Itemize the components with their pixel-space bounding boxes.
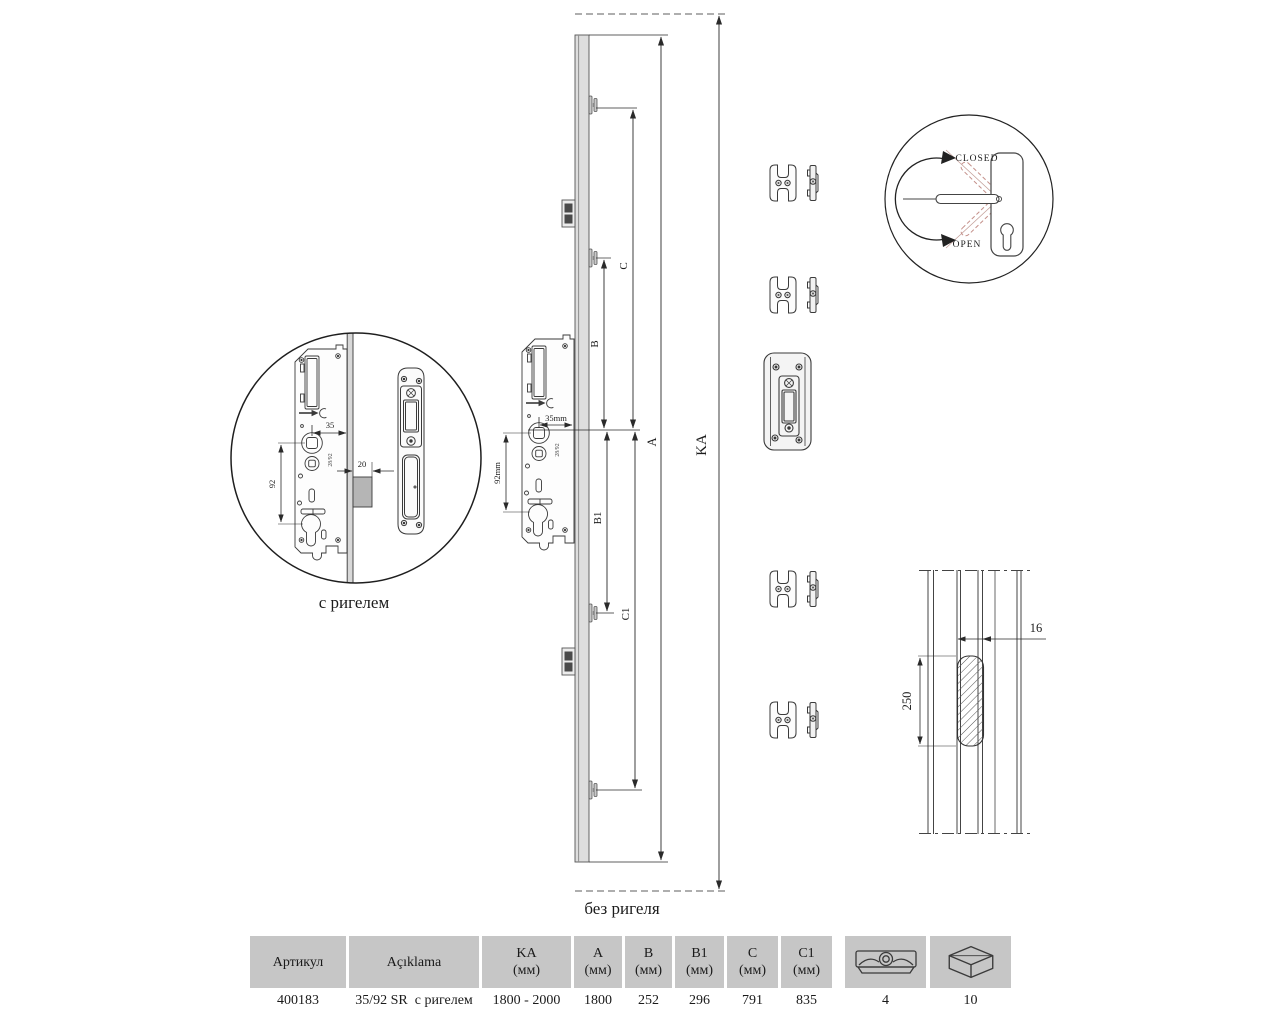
- lock-gearbox: [522, 335, 574, 550]
- dim-label-c: C: [618, 262, 630, 269]
- lock-gearbox-detail: [295, 345, 347, 560]
- handle-backplate: [991, 153, 1023, 256]
- detail-stamp-label: 28/92: [328, 453, 334, 466]
- keeper-pair-2: [770, 277, 818, 313]
- cam-block-lower: [562, 648, 575, 675]
- backset-dim-label: 35mm: [545, 413, 567, 423]
- handle-rotation-diagram: CLOSED OPEN: [885, 115, 1053, 283]
- value-a: 1800: [574, 991, 622, 1011]
- roller-cam-4: [589, 781, 597, 799]
- door-edge-profile: [347, 330, 353, 586]
- dim-label-ka: KA: [694, 434, 710, 456]
- detail-keeper-plate: [398, 368, 424, 534]
- value-package-qty: 10: [930, 991, 1011, 1011]
- handle-lever: [936, 195, 999, 204]
- profile-cross-section: 16 250: [900, 570, 1046, 834]
- header-c: C (мм): [727, 936, 778, 988]
- header-package-qty: [930, 936, 1011, 988]
- open-label: OPEN: [953, 240, 982, 250]
- keeper-pair-1: [770, 165, 818, 201]
- value-roller-count: 4: [845, 991, 926, 1011]
- detail-backset-label: 35: [326, 420, 335, 430]
- value-ka: 1800 - 2000: [482, 991, 571, 1011]
- header-b: B (мм): [625, 936, 672, 988]
- header-roller-count: [845, 936, 926, 988]
- pz-dim-label: 92mm: [492, 462, 502, 484]
- lock-datasheet-page: 35mm 92mm 28/92 C B B1 C1 A KA без ригел…: [0, 0, 1280, 1024]
- value-description: 35/92 SR с ригелем: [349, 991, 479, 1011]
- keeper-pair-3: [770, 571, 818, 607]
- roller-cam-icon: [854, 946, 918, 978]
- bolt-throw-label: 20: [358, 459, 367, 469]
- value-b: 252: [625, 991, 672, 1011]
- dim-label-b: B: [589, 340, 601, 347]
- header-description: Açıklama: [349, 936, 479, 988]
- header-ka: KA (мм): [482, 936, 571, 988]
- detail-circle: 35 92 20 28/92 с ригелем: [231, 330, 481, 612]
- header-article: Артикул: [250, 936, 346, 988]
- technical-drawing: 35mm 92mm 28/92 C B B1 C1 A KA без ригел…: [0, 0, 1280, 934]
- lock-channel-section: [958, 656, 984, 746]
- deadbolt: [353, 477, 372, 507]
- closed-label: CLOSED: [956, 154, 999, 164]
- roller-cam-3: [589, 604, 597, 622]
- slot-height-label: 250: [900, 692, 914, 711]
- keepers-column: [764, 165, 818, 738]
- keeper-pair-4: [770, 702, 818, 738]
- dim-label-c1: C1: [620, 608, 632, 621]
- detail-pz-label: 92: [267, 480, 277, 489]
- header-c1: C1 (мм): [781, 936, 832, 988]
- roller-cam-1: [589, 96, 597, 114]
- value-c: 791: [727, 991, 778, 1011]
- cam-block-upper: [562, 200, 575, 227]
- detail-circle-outline: [231, 333, 481, 583]
- package-icon: [942, 942, 1000, 982]
- value-article: 400183: [250, 991, 346, 1011]
- groove-width-label: 16: [1030, 621, 1043, 635]
- detail-circle-caption: с ригелем: [319, 593, 390, 612]
- main-strike-plate: [764, 353, 811, 450]
- value-b1: 296: [675, 991, 724, 1011]
- main-assembly-caption: без ригеля: [584, 899, 660, 918]
- header-a: A (мм): [574, 936, 622, 988]
- dim-label-b1: B1: [592, 512, 604, 525]
- header-b1: B1 (мм): [675, 936, 724, 988]
- dim-label-a: A: [645, 437, 659, 446]
- roller-cam-2: [589, 249, 597, 267]
- case-stamp-label: 28/92: [555, 443, 561, 456]
- main-assembly: 35mm 92mm 28/92 C B B1 C1 A KA без ригел…: [492, 14, 726, 918]
- faceplate-bar: [575, 35, 589, 862]
- value-c1: 835: [781, 991, 832, 1011]
- arc-arrow-closed: [941, 151, 956, 164]
